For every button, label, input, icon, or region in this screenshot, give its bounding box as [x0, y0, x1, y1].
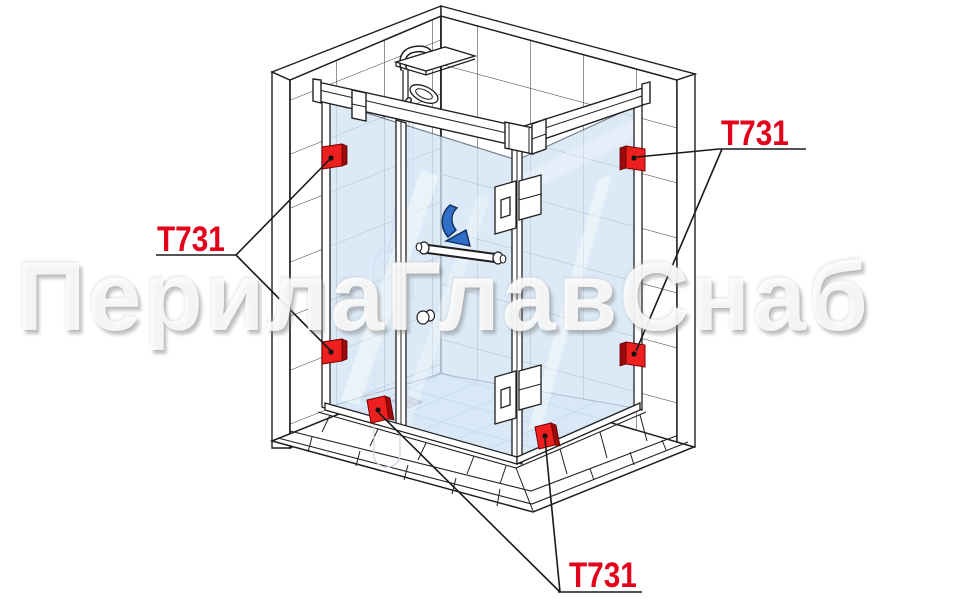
connector-edge: [342, 144, 347, 166]
top-rail-end-cap-right: [642, 82, 650, 105]
shower-enclosure-diagram: Т731 Т731 Т731 ПерилаГлавСнаб: [0, 0, 970, 606]
part-label-bottom: Т731: [569, 556, 637, 595]
connector-edge: [342, 339, 347, 361]
connector-dot: [542, 433, 547, 438]
hinge-upper-hole: [501, 197, 510, 218]
connector-dot: [375, 407, 380, 412]
connector-dot: [631, 351, 636, 356]
hinge-lower-hole: [501, 387, 510, 408]
door-handle-flange-right: [500, 255, 506, 263]
connector-dot: [631, 155, 636, 160]
wall-left-slab-side: [272, 72, 290, 448]
connector-edge: [620, 342, 626, 366]
part-label-top-right: Т731: [721, 114, 789, 153]
wall-right-slab-side: [677, 74, 695, 447]
diagram-canvas: Т731 Т731 Т731: [0, 0, 970, 606]
top-rail-end-cap-left: [313, 79, 321, 103]
connector-edge: [620, 146, 626, 170]
glass-panel-left: [325, 100, 517, 461]
door-knob: [417, 311, 429, 324]
part-label-left: Т731: [157, 220, 225, 259]
door-handle-flange-left: [416, 243, 422, 251]
